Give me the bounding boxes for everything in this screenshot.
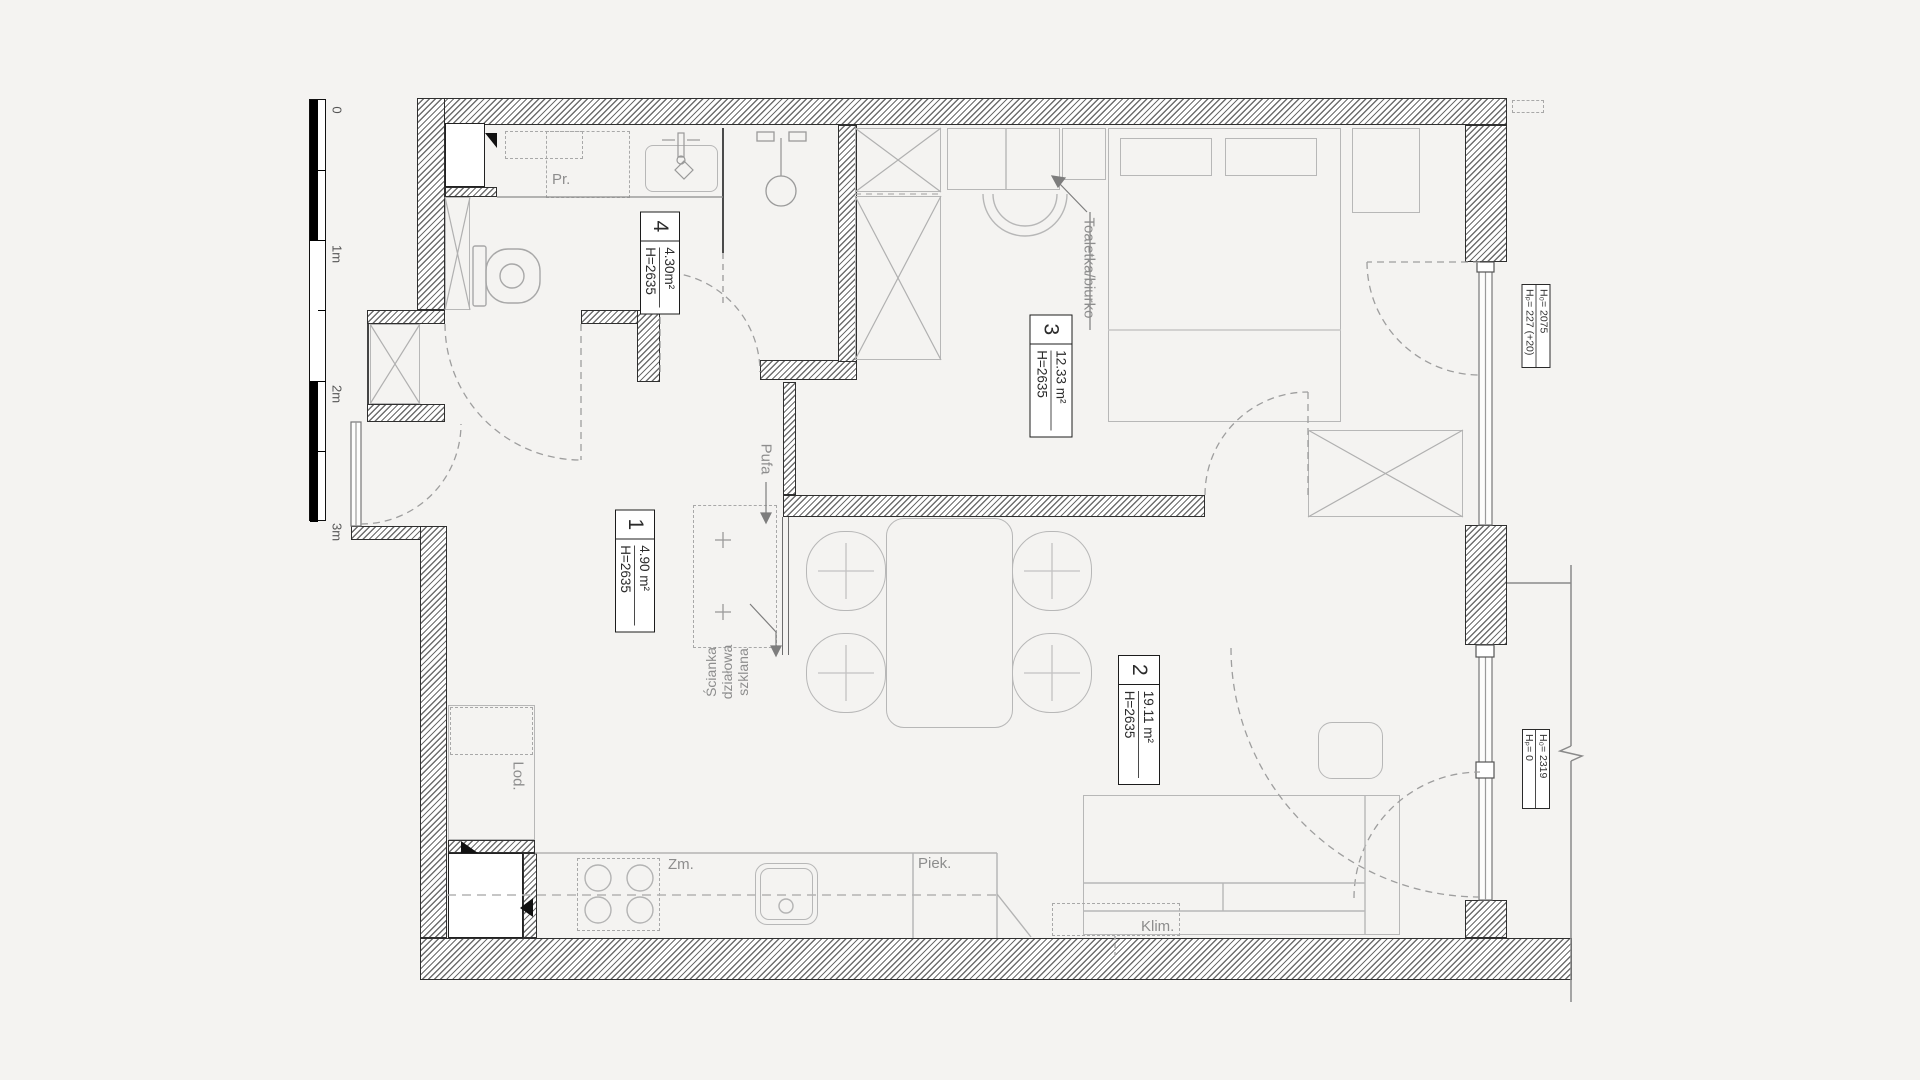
wardrobe-cross-marks xyxy=(370,128,1463,517)
window-height-label-upper: H₀= 2075 Hₚ= 227 (+20) xyxy=(1522,284,1551,368)
window-bedroom xyxy=(1477,262,1494,525)
toilet xyxy=(473,246,540,306)
scale-label-1m: 1m xyxy=(330,245,345,263)
room-label-bedroom: 3 12.33 m²H=2635 xyxy=(1030,315,1073,438)
plan-linework xyxy=(0,0,1920,1080)
scale-bar xyxy=(309,99,326,521)
window-height-label-lower: H₀= 2319 Hₚ= 0 xyxy=(1522,729,1550,809)
vanity-chair xyxy=(983,128,1341,330)
room-label-living: 2 19.11 m²H=2635 xyxy=(1118,655,1160,785)
washer-label: Pr. xyxy=(552,171,570,188)
floor-plan: 0 1m 2m 3m 4 4.30m²H=2635 3 12.33 m²H=26… xyxy=(0,0,1920,1080)
oven-label: Piek. xyxy=(918,855,951,872)
fridge-label: Lod. xyxy=(510,761,527,790)
sofa-lines xyxy=(1083,795,1365,957)
vanity-desk-label: Toaletka/biurko xyxy=(1081,218,1098,319)
dishwasher-label: Zm. xyxy=(668,856,694,873)
scale-segment xyxy=(310,381,318,522)
scale-segment xyxy=(310,100,318,241)
shaft-triangles xyxy=(461,133,533,917)
shower xyxy=(723,128,806,308)
door-swings xyxy=(361,262,1480,898)
pouf-label: Pufa xyxy=(758,444,775,475)
chair-cross-marks xyxy=(715,532,1080,701)
bathroom-faucet xyxy=(497,133,723,197)
room-label-hall: 1 4.90 m²H=2635 xyxy=(615,510,655,633)
window-left xyxy=(351,422,361,526)
room-label-bathroom: 4 4.30m²H=2635 xyxy=(640,212,680,315)
scale-label-2m: 2m xyxy=(330,385,345,403)
scale-label-3m: 3m xyxy=(330,523,345,541)
scale-label-0: 0 xyxy=(330,106,345,113)
ac-label: Klim. xyxy=(1141,918,1174,935)
glass-wall-label: Ścianka działowa szklana xyxy=(703,597,751,747)
